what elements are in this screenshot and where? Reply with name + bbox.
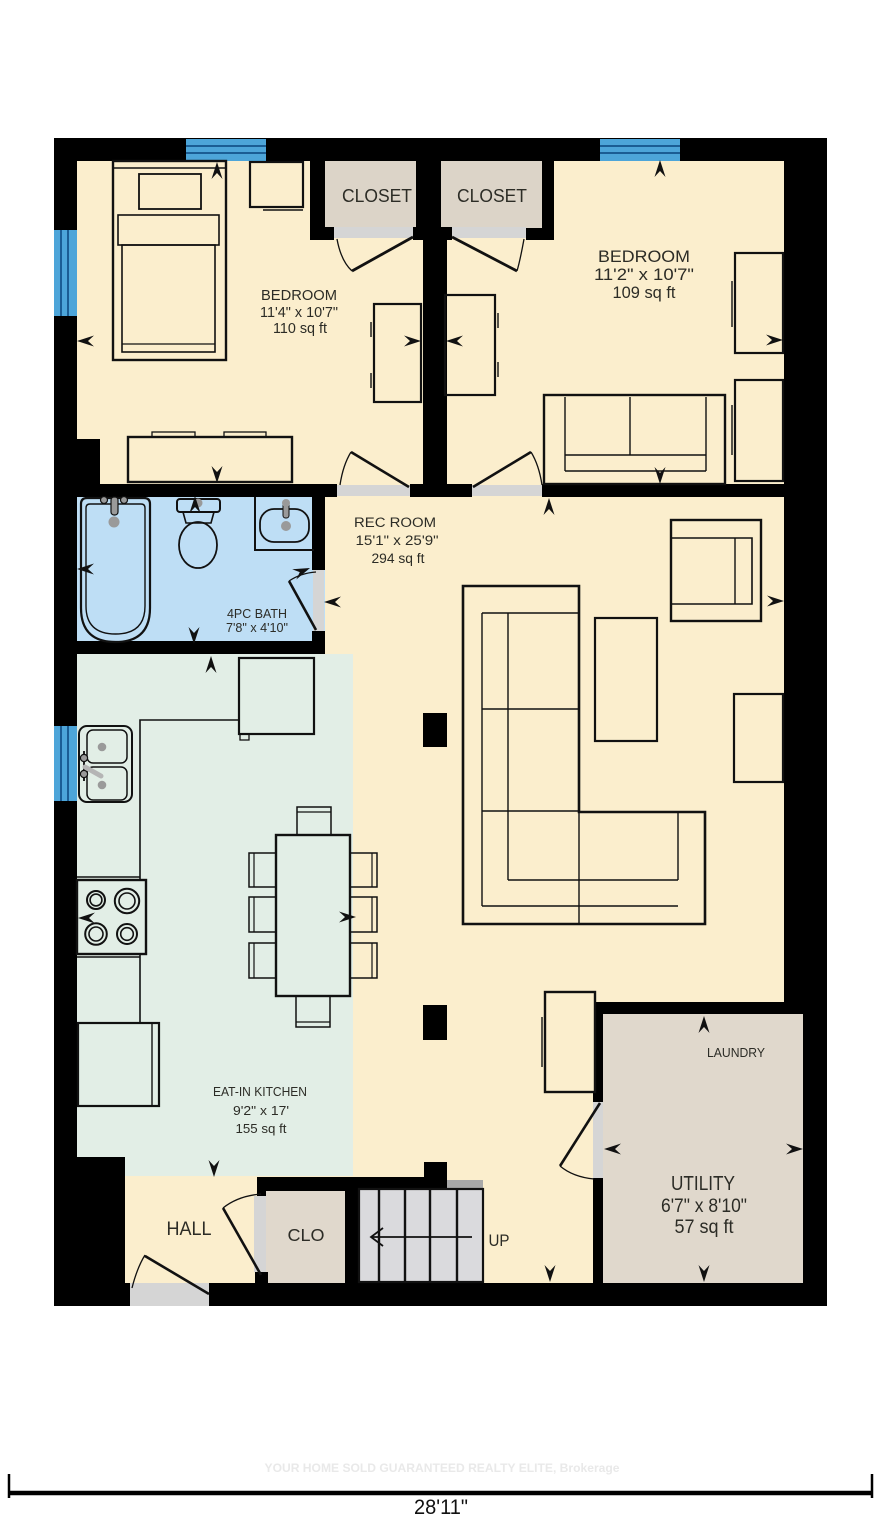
svg-text:11'4" x 10'7": 11'4" x 10'7" [260,305,338,321]
svg-text:CLO: CLO [288,1225,325,1245]
svg-text:15'1" x 25'9": 15'1" x 25'9" [356,533,439,549]
svg-text:109 sq ft: 109 sq ft [613,284,676,302]
svg-text:CLOSET: CLOSET [457,185,527,206]
svg-text:155 sq ft: 155 sq ft [236,1122,288,1136]
svg-text:UTILITY: UTILITY [671,1173,735,1195]
svg-text:HALL: HALL [167,1219,212,1240]
svg-text:BEDROOM: BEDROOM [598,248,690,266]
svg-text:6'7" x 8'10": 6'7" x 8'10" [661,1196,747,1217]
svg-text:YOUR HOME SOLD GUARANTEED REAL: YOUR HOME SOLD GUARANTEED REALTY ELITE, … [265,1461,620,1475]
svg-text:CLOSET: CLOSET [342,185,412,206]
svg-text:UP: UP [489,1232,510,1250]
svg-text:EAT-IN KITCHEN: EAT-IN KITCHEN [213,1085,307,1099]
svg-text:4PC BATH: 4PC BATH [227,607,287,621]
svg-text:11'2" x 10'7": 11'2" x 10'7" [594,266,694,284]
svg-text:7'8" x 4'10": 7'8" x 4'10" [226,621,288,635]
svg-text:LAUNDRY: LAUNDRY [707,1045,765,1060]
svg-text:110 sq ft: 110 sq ft [273,321,327,337]
svg-text:REC ROOM: REC ROOM [354,515,436,531]
svg-text:BEDROOM: BEDROOM [261,288,337,304]
svg-text:28'11": 28'11" [414,1496,468,1519]
svg-text:57 sq ft: 57 sq ft [675,1217,735,1238]
svg-text:294 sq ft: 294 sq ft [372,551,425,567]
svg-text:9'2" x 17': 9'2" x 17' [233,1104,289,1118]
